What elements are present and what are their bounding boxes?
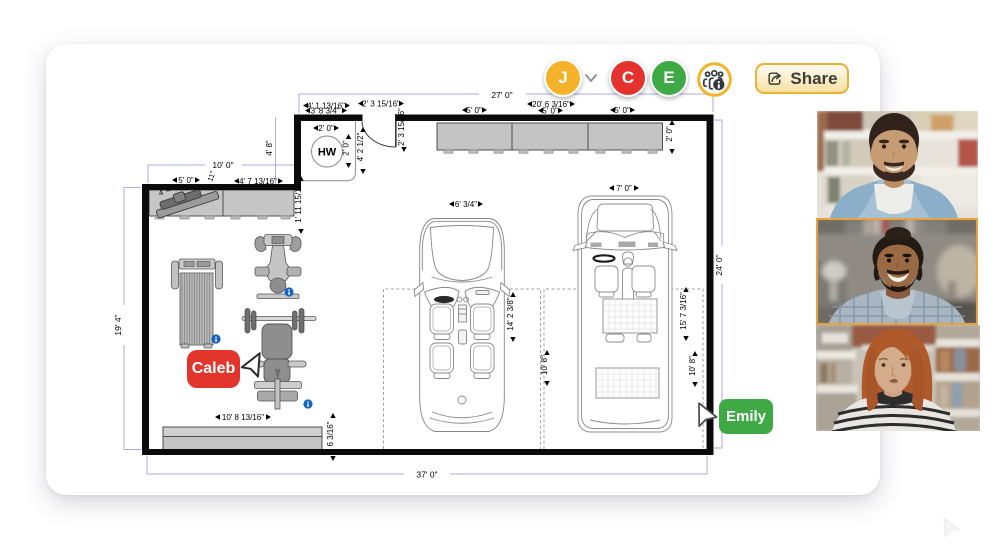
svg-text:2' 3 15/16": 2' 3 15/16" (397, 108, 406, 146)
svg-text:2' 3 15/16": 2' 3 15/16" (362, 100, 400, 109)
svg-text:5' 0": 5' 0" (614, 106, 630, 115)
svg-text:4' 7 13/16": 4' 7 13/16" (239, 177, 277, 186)
svg-text:15' 7 3/16": 15' 7 3/16" (679, 292, 688, 330)
svg-text:HW: HW (318, 147, 337, 159)
svg-text:2' 0": 2' 0" (665, 126, 674, 142)
svg-text:7' 0": 7' 0" (616, 184, 632, 193)
svg-text:5' 0": 5' 0" (178, 176, 194, 185)
svg-text:2' 0": 2' 0" (318, 124, 334, 133)
svg-text:5' 0": 5' 0" (466, 106, 482, 115)
svg-text:2' 0": 2' 0" (342, 140, 351, 156)
svg-text:10' 0": 10' 0" (212, 160, 233, 170)
svg-text:11": 11" (205, 169, 217, 182)
svg-text:37' 0": 37' 0" (416, 470, 437, 480)
svg-text:19' 4": 19' 4" (113, 314, 123, 335)
svg-text:5' 0": 5' 0" (542, 107, 558, 116)
svg-text:4' 2 1/2": 4' 2 1/2" (356, 132, 365, 161)
svg-text:10' 8": 10' 8" (688, 356, 697, 376)
svg-text:24' 0": 24' 0" (714, 254, 724, 275)
svg-text:4' 8": 4' 8" (265, 140, 274, 156)
svg-text:1' 11 15/16": 1' 11 15/16" (294, 181, 303, 223)
svg-text:6 3/16": 6 3/16" (326, 421, 335, 446)
svg-text:6' 3/4": 6' 3/4" (455, 200, 477, 209)
svg-text:3' 8 3/4": 3' 8 3/4" (311, 107, 340, 116)
svg-text:10' 8": 10' 8" (540, 355, 549, 375)
svg-text:10' 8 13/16": 10' 8 13/16" (222, 413, 264, 422)
svg-text:14' 2 3/8": 14' 2 3/8" (506, 297, 515, 330)
svg-text:27' 0": 27' 0" (491, 90, 512, 100)
